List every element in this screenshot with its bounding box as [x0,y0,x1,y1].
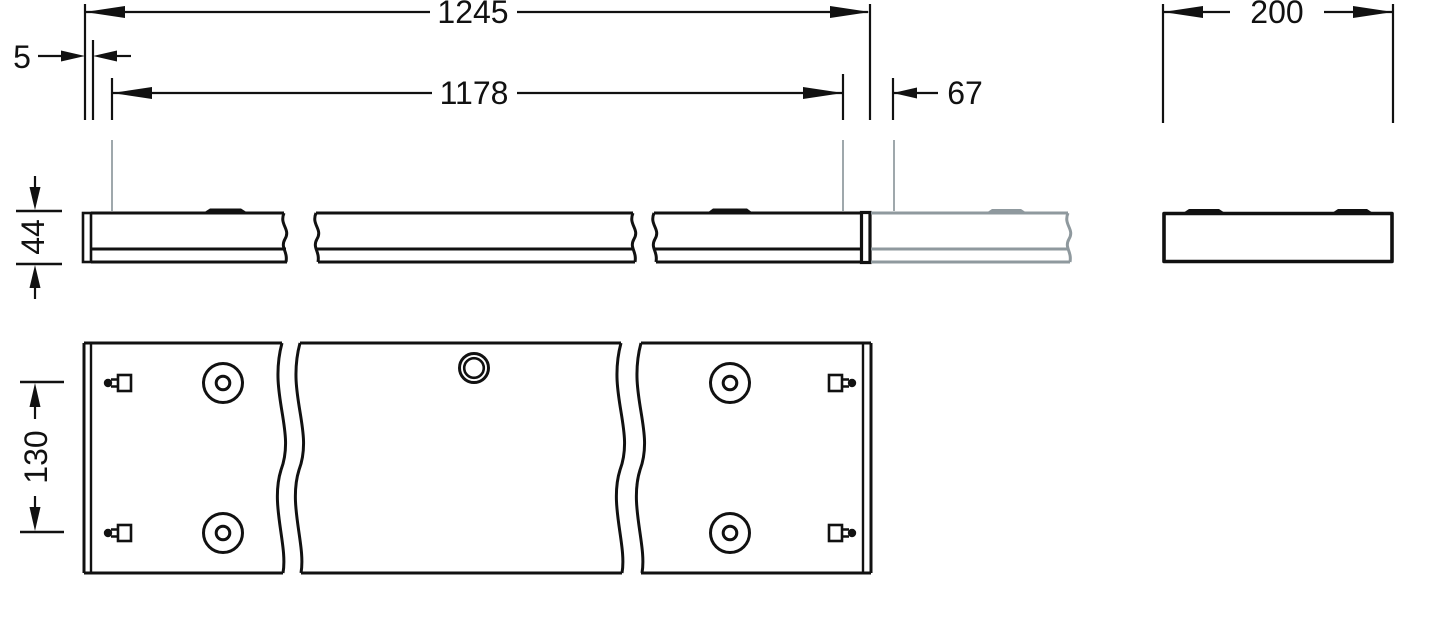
break-line [616,343,624,573]
keyhole-circle [848,379,856,387]
row-continuation [871,209,1071,262]
grommet-outer [204,514,243,553]
keyhole-slot-bottom-right [829,525,856,541]
keyhole-rect [829,525,842,541]
arrowhead-left-icon [93,51,117,62]
center-cable-hole [460,354,489,383]
plan-view [84,343,871,573]
grommet-hole-top-left [204,364,243,403]
dimension-drawing: 1245 5 1178 67 200 [0,0,1440,643]
arrowhead-left-icon [112,87,152,99]
dim-continuation-offset: 67 [893,75,983,120]
dim-label-profile-width: 200 [1250,0,1303,30]
dim-label-suspension-span: 1178 [440,75,509,111]
keyhole-rect [829,375,842,391]
suspension-leaders [112,140,894,211]
arrowhead-left-icon [893,88,917,99]
grommet-inner [723,376,737,390]
break-line [283,213,287,262]
keyhole-rect [118,525,131,541]
dim-profile-width: 200 [1163,0,1393,123]
grommet-hole-bottom-left [204,514,243,553]
keyhole-slot-top-right [829,375,856,391]
technical-drawing-canvas: 1245 5 1178 67 200 [0,0,1440,643]
mounting-clip [707,209,753,214]
arrowhead-down-icon [30,507,41,531]
grommet-inner [723,526,737,540]
dim-slot-spacing: 130 [18,382,64,532]
arrowhead-up-icon [30,265,41,288]
dim-end-cap: 5 [13,39,131,120]
cable-hole-inner [464,358,484,378]
arrowhead-right-icon [61,51,85,62]
break-line [295,343,303,573]
dim-label-overall-length: 1245 [437,0,508,30]
row-joint-end-cap [862,213,871,263]
grommet-outer [711,514,750,553]
arrowhead-right-icon [803,87,843,99]
break-line [1067,213,1071,262]
keyhole-slot-bottom-left [104,525,131,541]
arrowhead-left-icon [1163,6,1203,18]
end-cap-left [83,213,91,262]
break-line [653,213,657,262]
keyhole-rect [118,375,131,391]
dim-profile-height: 44 [15,176,62,299]
side-view [83,209,870,263]
mounting-clip [203,209,248,214]
arrowhead-up-icon [30,383,41,407]
dim-label-profile-height: 44 [15,219,51,255]
grommet-hole-bottom-right [711,514,750,553]
end-view-body [1164,214,1392,262]
dim-label-continuation-offset: 67 [947,75,983,111]
grommet-outer [711,364,750,403]
dim-label-slot-spacing: 130 [18,430,54,483]
break-line [315,213,319,262]
mounting-clip-gray [986,209,1027,213]
arrowhead-down-icon [30,187,41,210]
grommet-outer [204,364,243,403]
keyhole-circle [104,529,112,537]
keyhole-circle [848,529,856,537]
mounting-clip [1332,209,1373,213]
break-line [632,213,636,262]
grommet-inner [216,526,230,540]
dim-suspension-span: 1178 [112,74,843,120]
keyhole-slot-top-left [104,375,131,391]
arrowhead-left-icon [85,6,125,18]
keyhole-circle [104,379,112,387]
break-line [277,343,285,573]
end-view [1164,209,1392,262]
arrowhead-right-icon [830,6,870,18]
mounting-clip [1183,209,1225,213]
grommet-hole-top-right [711,364,750,403]
arrowhead-right-icon [1353,6,1393,18]
grommet-inner [216,376,230,390]
dim-label-end-cap: 5 [13,39,31,75]
break-line [636,343,644,573]
